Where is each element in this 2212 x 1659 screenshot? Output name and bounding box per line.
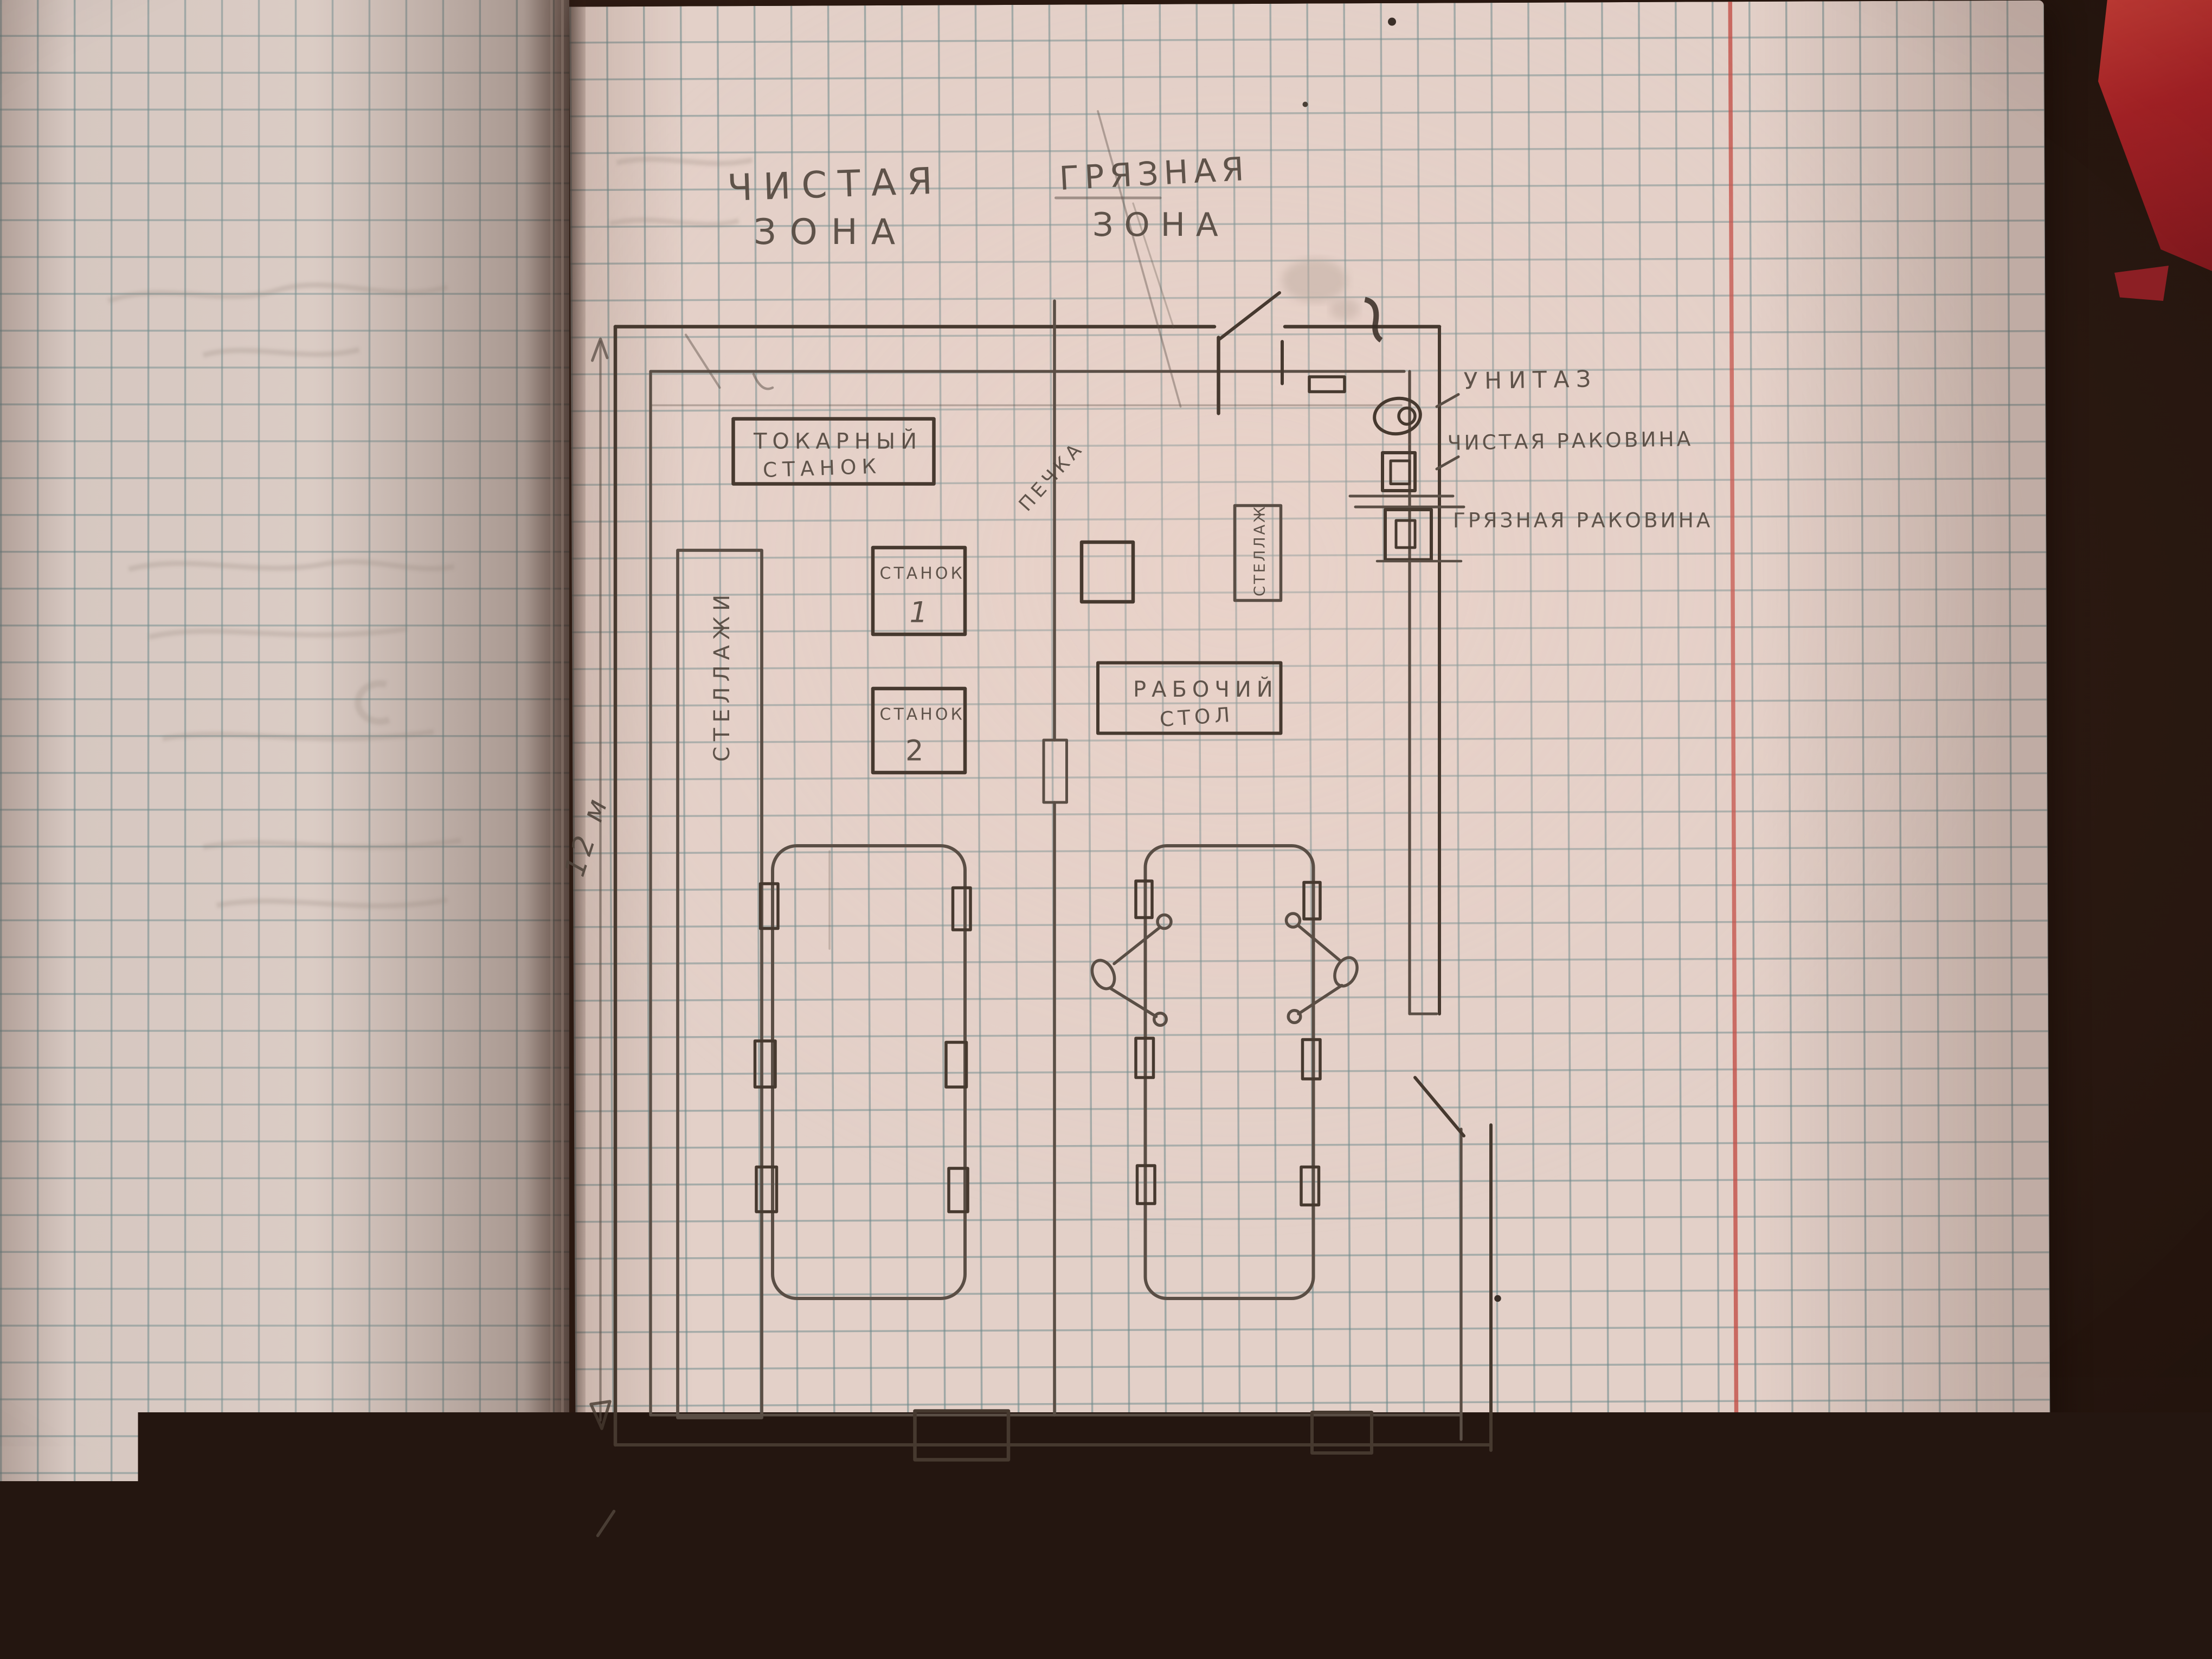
zone-titles: ЧИСТАЯ ЗОНА ГРЯЗНАЯ ЗОНА bbox=[726, 150, 1250, 253]
workbench-label-line2: СТОЛ bbox=[1159, 703, 1235, 731]
machine1-label: СТАНОК bbox=[880, 564, 965, 583]
smudge bbox=[1282, 259, 1347, 303]
notebook-photo: 12 м 9м bbox=[0, 0, 2212, 1659]
workbench-label-line1: РАБОЧИЙ bbox=[1133, 676, 1278, 702]
vehicle-left bbox=[755, 846, 971, 1298]
partition-opening bbox=[1044, 740, 1067, 802]
dim-height-label: 12 м bbox=[558, 792, 615, 880]
stove-box: ПЕЧКА bbox=[1015, 437, 1133, 602]
wheel bbox=[953, 888, 971, 930]
fixture-labels: УНИТАЗ ЧИСТАЯ РАКОВИНА ГРЯЗНАЯ РАКОВИНА bbox=[1437, 366, 1713, 532]
toilet-drawing bbox=[1372, 395, 1423, 436]
machine2-number: 2 bbox=[905, 735, 923, 768]
mirror-right bbox=[1287, 914, 1362, 1023]
dirty-zone-label-line1: ГРЯЗНАЯ bbox=[1058, 150, 1250, 198]
clean-zone-label-line1: ЧИСТАЯ bbox=[726, 159, 944, 209]
dirty-sink-drawing bbox=[1377, 510, 1461, 561]
bottom-gate-opening bbox=[915, 1411, 1009, 1460]
dim-width-label: 9м bbox=[924, 1548, 980, 1588]
clean-sink-drawing bbox=[1350, 453, 1464, 507]
lathe-label-line2: СТАНОК bbox=[762, 454, 882, 482]
ink-mark bbox=[1365, 300, 1381, 340]
machine2-label: СТАНОК bbox=[880, 705, 965, 724]
lathe-label-line1: ТОКАРНЫЙ bbox=[753, 428, 922, 454]
machine1-number: 1 bbox=[910, 596, 928, 629]
bottom-door-opening bbox=[1312, 1412, 1372, 1453]
machine2-box: СТАНОК 2 bbox=[873, 689, 965, 773]
clean-zone-label-line2: ЗОНА bbox=[754, 212, 909, 253]
stove-label: ПЕЧКА bbox=[1015, 437, 1089, 516]
machine1-box: СТАНОК 1 bbox=[873, 548, 965, 634]
dirty-zone-label-line2: ЗОНА bbox=[1092, 206, 1229, 244]
vehicle-right bbox=[1088, 846, 1361, 1298]
toilet-label: УНИТАЗ bbox=[1463, 366, 1598, 395]
workbench-box: РАБОЧИЙ СТОЛ bbox=[1098, 663, 1281, 734]
floor-plan-drawing: 12 м 9м bbox=[0, 0, 2212, 1659]
wheel bbox=[1301, 1167, 1319, 1205]
clean-sink-label: ЧИСТАЯ РАКОВИНА bbox=[1447, 427, 1693, 455]
wheel bbox=[1303, 1040, 1321, 1079]
bleed-through-writing bbox=[108, 159, 753, 906]
entrance-door bbox=[1219, 293, 1345, 414]
shelf-right-box: СТЕЛЛАЖ bbox=[1235, 505, 1281, 601]
speck bbox=[1494, 1295, 1501, 1302]
speck bbox=[1303, 102, 1308, 107]
shelves-left-label: СТЕЛЛАЖИ bbox=[710, 589, 735, 762]
shelves-left-box: СТЕЛЛАЖИ bbox=[678, 550, 762, 1418]
dimension-height-12m: 12 м bbox=[558, 339, 615, 1429]
shelf-right-label: СТЕЛЛАЖ bbox=[1251, 505, 1269, 596]
door-leaf bbox=[1220, 293, 1279, 339]
dirty-sink-label: ГРЯЗНАЯ РАКОВИНА bbox=[1453, 509, 1713, 532]
lathe-box: ТОКАРНЫЙ СТАНОК bbox=[734, 419, 934, 484]
speck bbox=[1388, 18, 1396, 26]
wheel bbox=[946, 1043, 967, 1088]
dimension-width-9m: 9м bbox=[598, 1512, 1495, 1588]
mirror-left bbox=[1088, 915, 1171, 1026]
